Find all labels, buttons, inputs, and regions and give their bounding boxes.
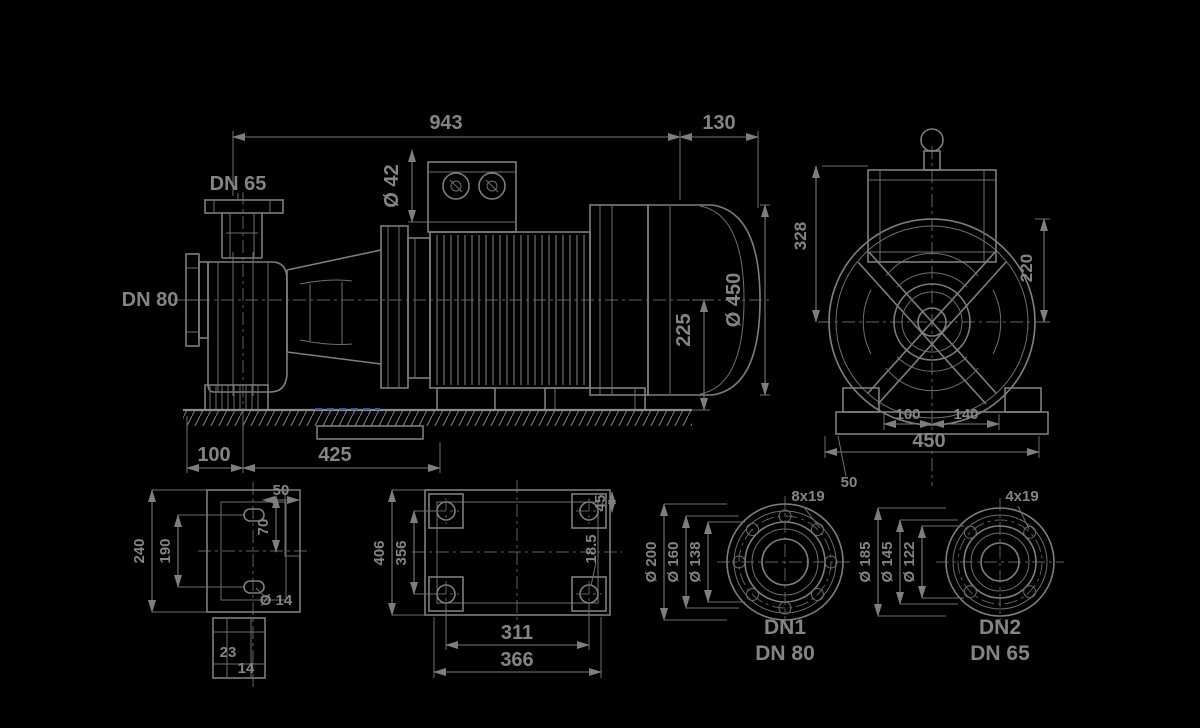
flange-dn65-bolts-label: 4x19 (1005, 488, 1038, 505)
dim-shaft-dia-label: Ø 42 (381, 164, 403, 207)
flange-dn80-bolts-label: 8x19 (791, 488, 824, 505)
flange-dn65-raised-face-label: Ø 122 (901, 542, 918, 583)
flange-dn65-port-size: DN 65 (970, 642, 1030, 665)
flange-dn80-port-id: DN1 (764, 616, 806, 639)
dim-base-outer-width-label: 406 (371, 540, 388, 565)
flange-dn80-port-size: DN 80 (755, 642, 815, 665)
flange-dn80-raised-face-label: Ø 138 (687, 542, 704, 583)
suction-port-label: DN 80 (122, 289, 179, 311)
flange-dn65-bolt-circle-label: Ø 145 (879, 542, 896, 583)
flange-dn65-outer-dia-label: Ø 185 (857, 542, 874, 583)
dim-foot-slot-length-label: 23 (220, 644, 237, 661)
dim-fan-clearance-label: 130 (702, 112, 735, 134)
dim-end-foot-right-label: 140 (953, 406, 978, 423)
dim-end-base-width-label: 450 (912, 430, 945, 452)
dim-base-hole-spacing-across-label: 356 (393, 540, 410, 565)
dim-motor-dia-label: Ø 450 (723, 273, 745, 327)
dim-end-top-height-label: 328 (791, 222, 810, 250)
dim-foot-hole-dia-label: Ø 14 (260, 592, 293, 609)
dim-overall-length-label: 943 (429, 112, 462, 134)
dim-foot-length-label: 70 (255, 519, 272, 536)
flange-dn80-outer-dia-label: Ø 200 (643, 542, 660, 583)
discharge-port-label: DN 65 (210, 173, 267, 195)
flange-dn65-port-id: DN2 (979, 616, 1021, 639)
dim-foot-outer-width-label: 240 (131, 538, 148, 563)
dim-base-pad-label: 45 (592, 495, 609, 512)
dim-end-foot-left-label: 100 (895, 406, 920, 423)
dim-foot-depth-label: 50 (273, 482, 290, 499)
pump-dimensional-drawing: 943 130 Ø 42 225 Ø 450 DN 65 DN (0, 0, 1200, 728)
dim-foot-offset-label: 100 (197, 444, 230, 466)
dim-foot-hole-dia: Ø 14 (256, 588, 293, 609)
dim-foot-slot-width-label: 14 (238, 660, 255, 677)
dim-end-rail-height-label: 50 (841, 474, 858, 491)
dim-shaft-height-label: 225 (673, 313, 695, 346)
flange-dn80-bolt-circle-label: Ø 160 (665, 542, 682, 583)
dim-base-hole-spacing-long-label: 311 (501, 622, 533, 644)
dim-base-outer-length-label: 366 (500, 649, 533, 671)
dim-foot-hole-spacing-label: 190 (157, 538, 174, 563)
dim-base-hole-dia-label: 18.5 (583, 534, 600, 563)
dim-foot-spacing-label: 425 (318, 444, 351, 466)
dim-end-upper-radius-label: 220 (1017, 254, 1036, 282)
